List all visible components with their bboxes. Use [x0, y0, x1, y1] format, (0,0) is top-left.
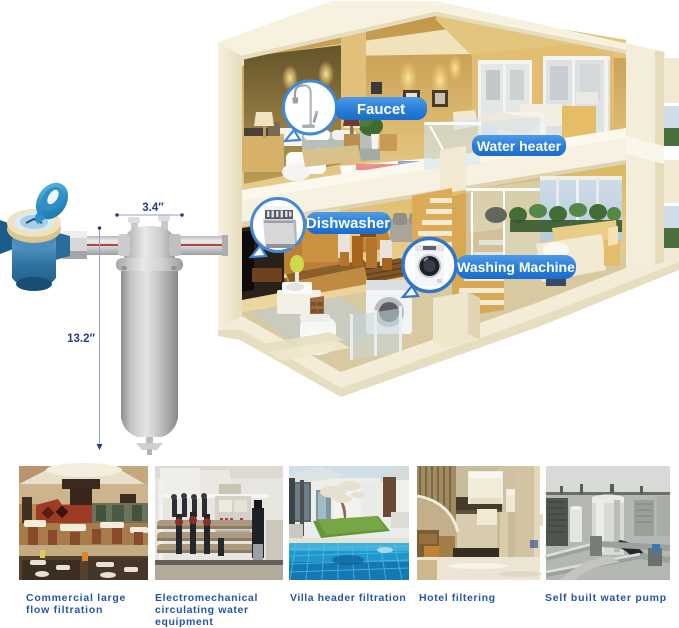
- svg-text:Faucet: Faucet: [357, 101, 405, 118]
- svg-text:Hotel filtering: Hotel filtering: [419, 592, 496, 604]
- svg-text:Water heater: Water heater: [477, 138, 562, 154]
- svg-text:Villa header filtration: Villa header filtration: [290, 592, 406, 604]
- svg-text:flow filtration: flow filtration: [26, 604, 103, 616]
- svg-text:Dishwasher: Dishwasher: [306, 215, 390, 232]
- svg-text:Electromechanical: Electromechanical: [155, 592, 258, 604]
- svg-text:Commercial large: Commercial large: [26, 592, 126, 604]
- svg-text:3.4″: 3.4″: [142, 202, 164, 214]
- svg-text:Washing Machine: Washing Machine: [457, 259, 575, 275]
- svg-text:equipment: equipment: [155, 616, 214, 628]
- svg-text:Self built water pump: Self built water pump: [545, 592, 667, 604]
- svg-text:13.2″: 13.2″: [67, 333, 95, 345]
- svg-text:circulating water: circulating water: [155, 604, 249, 616]
